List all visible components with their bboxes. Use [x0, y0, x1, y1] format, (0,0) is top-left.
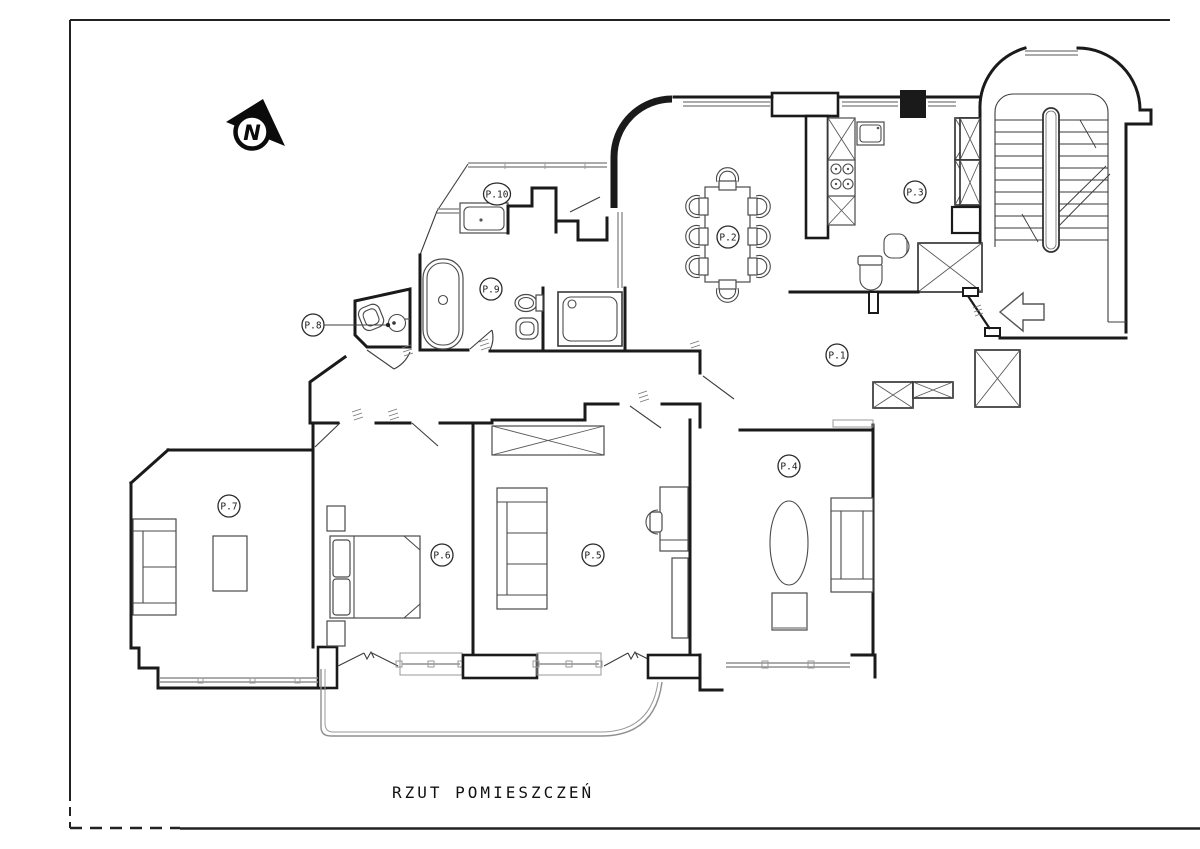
kitchen-sink — [857, 122, 884, 145]
svg-text:P.6: P.6 — [433, 551, 450, 562]
room-label-p10: P.10 — [484, 183, 511, 205]
wc-toilet — [858, 256, 882, 290]
room-label-p6: P.6 — [431, 544, 453, 566]
room-label-p5: P.5 — [582, 544, 604, 566]
wall-stem — [806, 116, 828, 238]
chimney-shaft — [975, 350, 1020, 407]
toilet-symbol — [356, 302, 385, 332]
room-label-p2: P.2 — [717, 226, 739, 248]
coffee-table — [213, 536, 247, 591]
chimney-shaft — [918, 243, 982, 292]
washing-machine — [460, 203, 508, 233]
staircase — [980, 48, 1151, 332]
room-label-p4: P.4 — [778, 455, 800, 477]
oval-table — [770, 501, 808, 585]
sofa-symbol — [133, 519, 176, 615]
svg-text:P.3: P.3 — [906, 188, 923, 199]
floor-plan-page: N — [0, 0, 1200, 849]
bay-room-p10 — [437, 163, 607, 240]
svg-text:P.10: P.10 — [486, 190, 509, 201]
floor-plan-canvas: N — [0, 0, 1200, 849]
room-p7 — [131, 423, 337, 688]
room-label-p1: P.1 — [826, 344, 848, 366]
room-label-p7: P.7 — [218, 495, 240, 517]
sofa-symbol — [497, 488, 547, 609]
chimney-shafts — [873, 118, 1020, 408]
wardrobe-symbol — [492, 426, 604, 455]
south-facade — [321, 652, 700, 736]
svg-text:P.4: P.4 — [780, 462, 797, 473]
wc-p8 — [355, 289, 410, 369]
svg-text:P.1: P.1 — [828, 351, 845, 362]
svg-text:P.5: P.5 — [584, 551, 601, 562]
nightstand — [327, 621, 345, 646]
bed-symbol — [330, 536, 420, 618]
kitchen-appliance — [952, 207, 980, 233]
entry-arrow-icon — [1000, 293, 1044, 331]
chimney-shaft — [873, 382, 913, 408]
svg-text:P.9: P.9 — [482, 285, 499, 296]
nightstand — [327, 506, 345, 531]
north-arrow-icon: N — [226, 99, 285, 149]
room-p5 — [492, 420, 690, 655]
chimney-shaft — [913, 382, 953, 398]
wall-pier — [772, 93, 838, 116]
wall-pier — [900, 90, 926, 118]
desk-symbol — [646, 487, 688, 551]
shower-symbol — [558, 292, 622, 346]
svg-text:P.8: P.8 — [304, 321, 321, 332]
basin-symbol — [389, 315, 411, 332]
room-label-p3: P.3 — [904, 181, 926, 203]
side-table — [772, 593, 807, 630]
shelf-symbol — [672, 558, 688, 638]
wc-basin — [884, 234, 909, 258]
stove — [828, 160, 855, 196]
tall-cabinet — [960, 118, 980, 205]
svg-text:P.7: P.7 — [220, 502, 237, 513]
room-label-p9: P.9 — [480, 278, 502, 300]
bidet-symbol — [516, 318, 538, 339]
sofa-symbol — [831, 498, 873, 592]
dining-room — [614, 97, 772, 350]
toilet-symbol — [515, 295, 543, 312]
drawing-title: RZUT POMIESZCZEŃ — [392, 783, 594, 802]
stair-newel — [1043, 108, 1059, 252]
room-p6 — [327, 423, 473, 655]
svg-text:P.2: P.2 — [719, 233, 736, 244]
bathtub-symbol — [423, 259, 463, 349]
north-label: N — [243, 121, 261, 145]
